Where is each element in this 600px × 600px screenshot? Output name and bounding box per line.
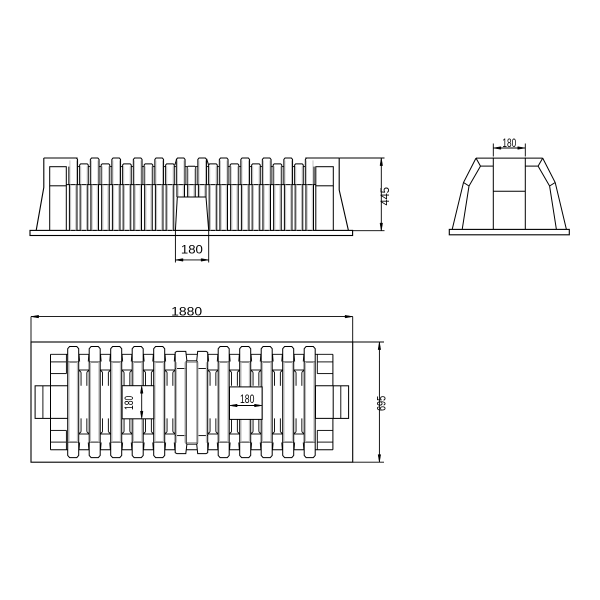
svg-text:180: 180 — [502, 136, 516, 150]
svg-text:180: 180 — [181, 243, 203, 257]
svg-text:695: 695 — [375, 395, 389, 411]
svg-text:1880: 1880 — [171, 304, 203, 318]
svg-text:180: 180 — [122, 395, 136, 410]
svg-text:445: 445 — [378, 187, 392, 206]
svg-text:180: 180 — [240, 392, 255, 406]
